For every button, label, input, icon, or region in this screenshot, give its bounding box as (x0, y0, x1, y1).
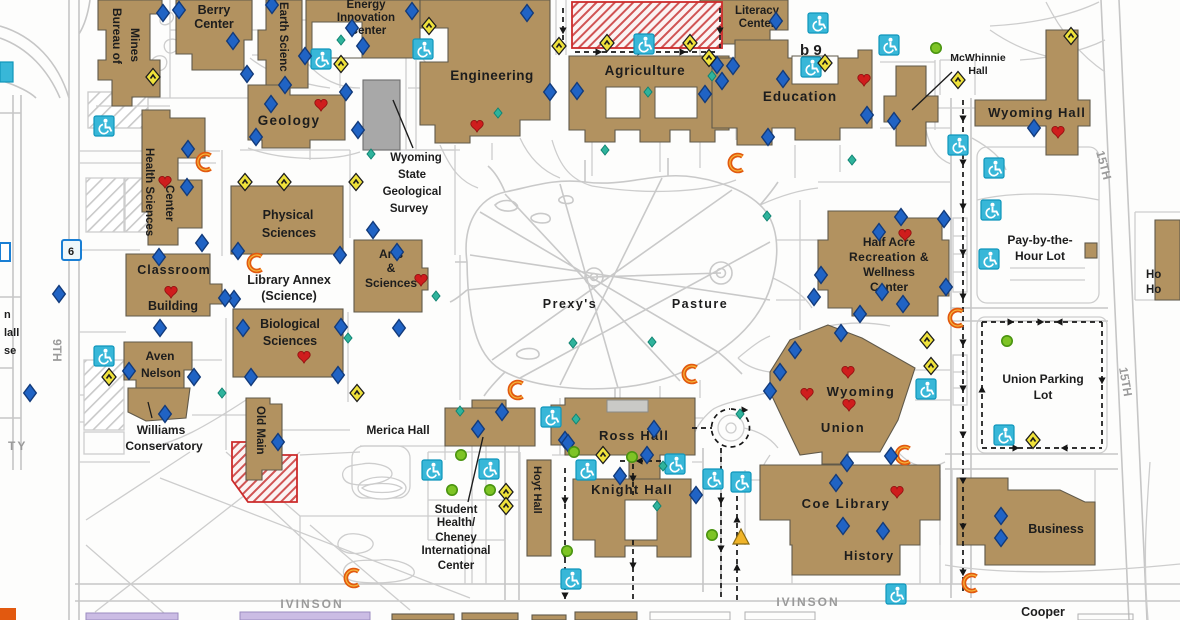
svg-text:Aven: Aven (146, 349, 175, 363)
svg-text:6: 6 (68, 246, 74, 258)
svg-text:Agriculture: Agriculture (605, 63, 686, 78)
svg-text:Union Parking: Union Parking (1002, 372, 1083, 386)
svg-text:Hall: Hall (968, 65, 987, 77)
svg-text:Merica Hall: Merica Hall (366, 423, 429, 437)
svg-text:Knight Hall: Knight Hall (591, 482, 673, 497)
svg-text:Conservatory: Conservatory (125, 439, 203, 453)
svg-text:n: n (4, 309, 11, 321)
svg-text:Innovation: Innovation (337, 12, 395, 24)
svg-text:Coe Library: Coe Library (802, 496, 891, 511)
svg-text:9TH: 9TH (50, 339, 64, 362)
svg-text:Health/: Health/ (437, 517, 476, 529)
svg-text:Geological: Geological (383, 186, 442, 198)
svg-text:Pasture: Pasture (672, 297, 728, 311)
svg-text:Biological: Biological (260, 317, 320, 331)
svg-text:Business: Business (1028, 522, 1084, 536)
svg-text:TY: TY (8, 439, 27, 453)
svg-text:Education: Education (763, 89, 837, 104)
svg-text:Survey: Survey (390, 203, 429, 215)
svg-text:se: se (4, 345, 16, 357)
svg-text:Recreation &: Recreation & (849, 250, 929, 264)
svg-text:lall: lall (4, 327, 19, 339)
svg-text:Earth Scienc: Earth Scienc (277, 2, 289, 72)
svg-text:Hoyt Hall: Hoyt Hall (531, 466, 543, 514)
svg-text:Student: Student (435, 504, 478, 516)
svg-text:Williams: Williams (137, 423, 186, 437)
svg-text:Wyoming Hall: Wyoming Hall (988, 105, 1086, 120)
svg-text:Center: Center (194, 17, 234, 31)
svg-text:Sciences: Sciences (262, 226, 316, 240)
svg-text:Sciences: Sciences (365, 276, 417, 290)
svg-text:Health Sciences: Health Sciences (143, 148, 155, 236)
svg-text:Union: Union (821, 420, 865, 435)
svg-text:Bureau of: Bureau of (110, 8, 124, 65)
svg-text:McWhinnie: McWhinnie (950, 52, 1006, 64)
svg-text:Center: Center (438, 560, 475, 572)
svg-text:Engineering: Engineering (450, 68, 534, 83)
svg-text:Berry: Berry (198, 3, 231, 17)
svg-text:Ho: Ho (1146, 284, 1161, 296)
svg-text:Pay-by-the-: Pay-by-the- (1007, 233, 1072, 247)
svg-text:Hour Lot: Hour Lot (1015, 249, 1065, 263)
svg-text:Physical: Physical (263, 208, 314, 222)
svg-text:Wellness: Wellness (863, 265, 915, 279)
svg-text:Sciences: Sciences (263, 334, 317, 348)
svg-text:Geology: Geology (258, 113, 320, 128)
svg-text:Ho: Ho (1146, 269, 1161, 281)
svg-text:IVINSON: IVINSON (776, 595, 839, 609)
svg-text:Cheney: Cheney (435, 532, 477, 544)
svg-text:Classroom: Classroom (137, 263, 211, 277)
svg-text:International: International (421, 545, 490, 557)
svg-text:Literacy: Literacy (735, 5, 780, 17)
svg-text:&: & (387, 261, 396, 275)
svg-text:Energy: Energy (347, 0, 387, 11)
svg-text:(Science): (Science) (261, 289, 317, 303)
svg-text:Prexy's: Prexy's (543, 297, 597, 311)
svg-text:Library Annex: Library Annex (247, 273, 331, 287)
svg-text:Nelson: Nelson (141, 366, 181, 380)
svg-text:Mines: Mines (128, 28, 142, 62)
svg-text:Cooper: Cooper (1021, 605, 1065, 619)
svg-text:Old Main: Old Main (254, 406, 266, 455)
svg-text:Center: Center (163, 185, 175, 222)
svg-text:Wyoming: Wyoming (390, 152, 442, 164)
svg-text:State: State (398, 169, 426, 181)
svg-text:Building: Building (148, 299, 198, 313)
svg-text:Wyoming: Wyoming (827, 384, 896, 399)
svg-text:History: History (844, 549, 894, 563)
svg-text:IVINSON: IVINSON (280, 597, 343, 611)
svg-text:Lot: Lot (1034, 388, 1053, 402)
